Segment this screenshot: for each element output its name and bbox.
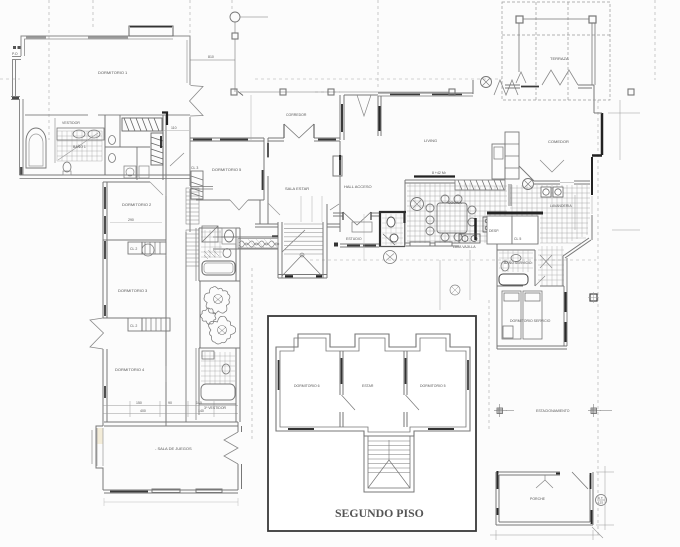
svg-text:DESP.: DESP. xyxy=(489,229,499,233)
svg-text:SEGUNDO PISO: SEGUNDO PISO xyxy=(335,506,424,520)
svg-text:P.O: P.O xyxy=(12,52,18,56)
svg-text:150: 150 xyxy=(136,401,142,405)
svg-text:3º VESTIDOR: 3º VESTIDOR xyxy=(204,406,227,410)
svg-text:DORMITORIO 5: DORMITORIO 5 xyxy=(420,384,446,388)
svg-text:LAVANDERIA: LAVANDERIA xyxy=(550,204,572,208)
svg-text:400: 400 xyxy=(140,409,146,413)
svg-text:DORMITORIO 1: DORMITORIO 1 xyxy=(98,70,128,75)
svg-text:HALL ACCESO: HALL ACCESO xyxy=(344,184,372,189)
svg-text:DORMITORIO SERVICIO: DORMITORIO SERVICIO xyxy=(510,319,551,323)
svg-text:CL 5: CL 5 xyxy=(514,237,521,241)
svg-text:SALA ESTAR: SALA ESTAR xyxy=(285,186,309,191)
svg-text:DORMITORIO 5: DORMITORIO 5 xyxy=(212,167,242,172)
svg-text:PORCHE: PORCHE xyxy=(530,497,546,501)
svg-text:125: 125 xyxy=(598,501,603,505)
svg-text:COMEDOR: COMEDOR xyxy=(548,139,569,144)
svg-text:810: 810 xyxy=(208,55,214,59)
svg-text:CL 2: CL 2 xyxy=(130,247,137,251)
svg-text:ESTAR: ESTAR xyxy=(362,384,374,388)
svg-text:CL 2: CL 2 xyxy=(130,324,137,328)
svg-text:DORMITORIO 2: DORMITORIO 2 xyxy=(122,202,152,207)
svg-text:COCINA: COCINA xyxy=(448,201,462,205)
svg-text:ESTACIONAMIENTO: ESTACIONAMIENTO xyxy=(536,409,570,413)
svg-text:BAÑO 1: BAÑO 1 xyxy=(73,144,86,149)
svg-text:LIVING: LIVING xyxy=(424,138,437,143)
svg-text:ESTUDIO: ESTUDIO xyxy=(346,237,362,241)
svg-text:CL 3: CL 3 xyxy=(191,166,198,170)
svg-text:TERRAZA: TERRAZA xyxy=(550,56,569,61)
svg-text:CORREDOR: CORREDOR xyxy=(286,113,307,117)
svg-text:110: 110 xyxy=(171,126,177,130)
svg-text:DORMITORIO 4: DORMITORIO 4 xyxy=(115,367,145,372)
svg-text:90: 90 xyxy=(168,401,172,405)
svg-text:DORMITORIO 6: DORMITORIO 6 xyxy=(294,384,320,388)
svg-text:290: 290 xyxy=(128,218,134,222)
svg-text:- SALA DE JUEGOS: - SALA DE JUEGOS xyxy=(155,446,192,451)
svg-text:DORMITORIO 3: DORMITORIO 3 xyxy=(118,288,148,293)
svg-text:8 +42 M²: 8 +42 M² xyxy=(432,171,447,175)
svg-text:VESTIDOR: VESTIDOR xyxy=(62,121,80,125)
svg-text:C T: C T xyxy=(598,496,603,500)
